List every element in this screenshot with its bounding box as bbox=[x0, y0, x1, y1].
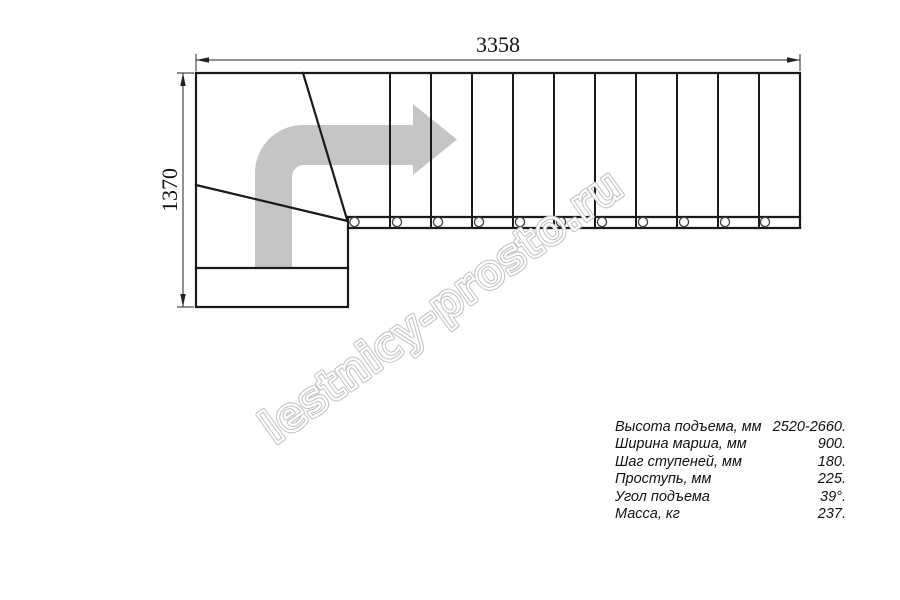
top-dimension-value: 3358 bbox=[476, 32, 520, 57]
spec-row-step-rise: Шаг ступеней, мм 180. bbox=[615, 454, 846, 471]
top-dimension: 3358 bbox=[196, 32, 800, 71]
dimension-arrow-right-icon bbox=[787, 57, 800, 62]
baluster-circle bbox=[720, 217, 729, 226]
spec-table: Высота подъема, мм 2520-2660. Ширина мар… bbox=[615, 419, 846, 523]
baluster-circle bbox=[638, 217, 647, 226]
direction-arrow-icon bbox=[255, 104, 457, 268]
left-dimension-value: 1370 bbox=[157, 168, 182, 212]
left-dimension: 1370 bbox=[157, 73, 194, 307]
spec-label: Угол подъема bbox=[615, 489, 710, 506]
spec-row-height: Высота подъема, мм 2520-2660. bbox=[615, 419, 846, 436]
direction-arrow-shape bbox=[255, 104, 457, 268]
dimension-arrow-left-icon bbox=[196, 57, 209, 62]
spec-value: 180. bbox=[818, 454, 846, 471]
spec-value: 237. bbox=[818, 506, 846, 523]
spec-label: Проступь, мм bbox=[615, 471, 711, 488]
spec-value: 39°. bbox=[820, 489, 846, 506]
baluster-circle bbox=[392, 217, 401, 226]
spec-row-flight-width: Ширина марша, мм 900. bbox=[615, 436, 846, 453]
baluster-circle bbox=[433, 217, 442, 226]
baluster-circle bbox=[760, 217, 769, 226]
spec-label: Масса, кг bbox=[615, 506, 680, 523]
staircase-drawing-canvas: 3358 1370 lestnicy-prosto.ru lestnicy-pr… bbox=[0, 0, 900, 600]
spec-label: Шаг ступеней, мм bbox=[615, 454, 742, 471]
spec-label: Высота подъема, мм bbox=[615, 419, 762, 436]
spec-value: 900. bbox=[818, 436, 846, 453]
spec-row-mass: Масса, кг 237. bbox=[615, 506, 846, 523]
baluster-circle bbox=[350, 217, 359, 226]
dimension-arrow-down-icon bbox=[180, 294, 185, 307]
dimension-arrow-up-icon bbox=[180, 73, 185, 86]
spec-value: 2520-2660. bbox=[773, 419, 846, 436]
spec-value: 225. bbox=[818, 471, 846, 488]
spec-row-angle: Угол подъема 39°. bbox=[615, 489, 846, 506]
baluster-circle bbox=[474, 217, 483, 226]
spec-row-tread: Проступь, мм 225. bbox=[615, 471, 846, 488]
baluster-circle bbox=[679, 217, 688, 226]
spec-label: Ширина марша, мм bbox=[615, 436, 747, 453]
